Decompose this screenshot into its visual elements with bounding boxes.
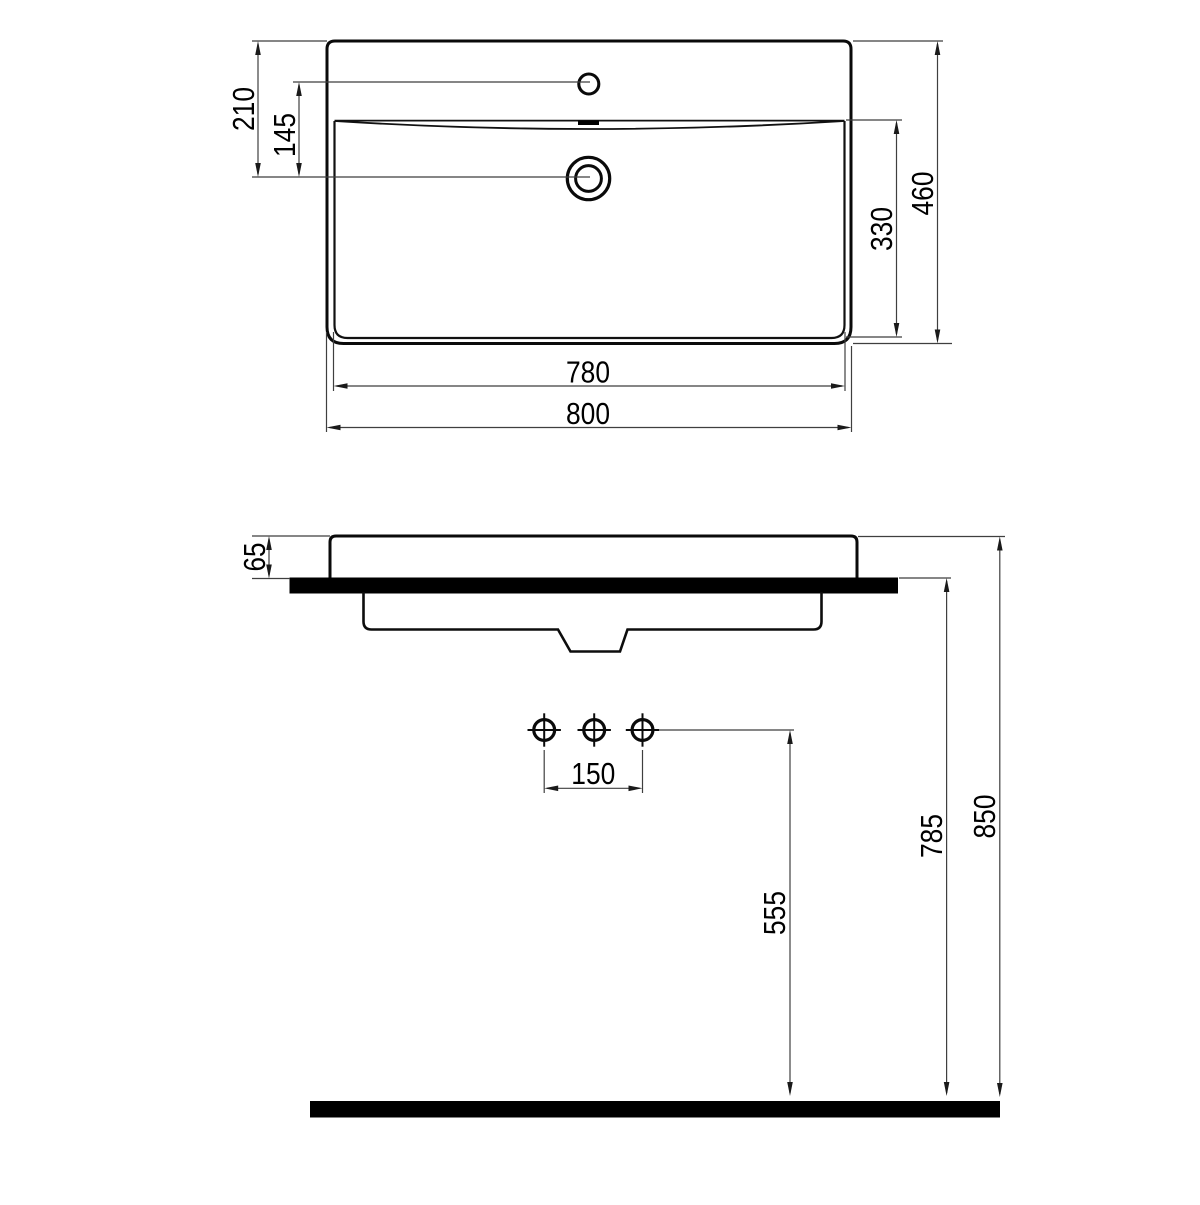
svg-text:780: 780 — [566, 355, 610, 390]
svg-text:555: 555 — [757, 891, 792, 935]
svg-text:800: 800 — [566, 396, 610, 431]
svg-text:330: 330 — [864, 207, 899, 251]
svg-text:65: 65 — [237, 543, 272, 572]
svg-text:145: 145 — [267, 113, 302, 157]
svg-text:460: 460 — [905, 172, 940, 216]
svg-text:785: 785 — [914, 814, 949, 858]
svg-text:850: 850 — [967, 795, 1002, 839]
svg-text:150: 150 — [571, 756, 615, 791]
svg-text:210: 210 — [226, 87, 261, 131]
